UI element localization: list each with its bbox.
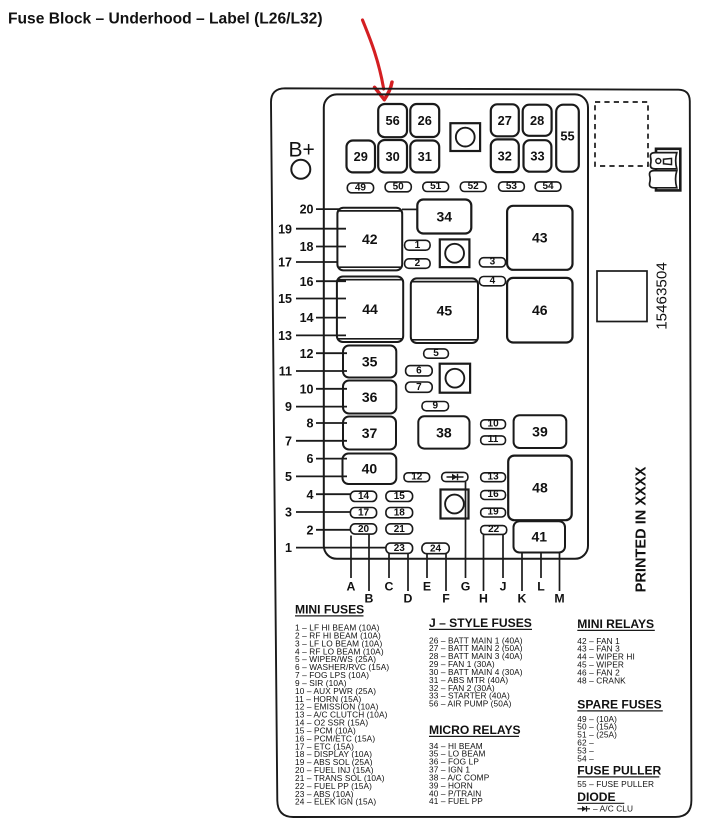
svg-text:1: 1 xyxy=(415,240,421,251)
svg-text:21: 21 xyxy=(394,524,406,535)
svg-text:L: L xyxy=(537,579,545,593)
svg-text:8: 8 xyxy=(307,417,314,431)
svg-text:10: 10 xyxy=(488,418,500,429)
svg-text:4: 4 xyxy=(490,276,496,287)
svg-text:7: 7 xyxy=(416,382,422,393)
svg-text:9: 9 xyxy=(285,400,292,414)
svg-text:SPARE FUSES: SPARE FUSES xyxy=(577,698,661,712)
svg-text:45: 45 xyxy=(437,303,453,319)
svg-text:1: 1 xyxy=(285,541,292,555)
svg-text:4: 4 xyxy=(307,488,314,502)
svg-text:J: J xyxy=(500,579,507,593)
svg-text:12: 12 xyxy=(300,347,314,361)
svg-text:17: 17 xyxy=(278,256,292,270)
svg-text:13: 13 xyxy=(278,329,292,343)
svg-text:42: 42 xyxy=(362,231,378,247)
svg-text:48: 48 xyxy=(532,480,548,496)
svg-text:20: 20 xyxy=(358,524,370,535)
svg-text:A: A xyxy=(347,579,356,593)
svg-text:43: 43 xyxy=(532,230,548,246)
svg-text:3: 3 xyxy=(285,506,292,520)
svg-text:50: 50 xyxy=(393,182,405,193)
svg-text:DIODE: DIODE xyxy=(577,790,615,804)
svg-text:D: D xyxy=(404,592,413,606)
svg-text:G: G xyxy=(461,579,471,593)
svg-text:54: 54 xyxy=(542,181,554,192)
svg-text:6: 6 xyxy=(416,366,422,377)
svg-text:34: 34 xyxy=(437,208,453,224)
svg-text:27: 27 xyxy=(498,113,512,128)
svg-text:36: 36 xyxy=(362,389,378,405)
svg-text:18: 18 xyxy=(394,508,406,519)
svg-text:K: K xyxy=(518,592,527,606)
svg-text:42 – FAN 143 – FAN 344 – WIPER: 42 – FAN 143 – FAN 344 – WIPER HI45 – WI… xyxy=(577,636,635,686)
svg-text:33: 33 xyxy=(530,149,544,164)
svg-text:39: 39 xyxy=(532,423,548,439)
svg-text:12: 12 xyxy=(411,471,423,482)
svg-text:5: 5 xyxy=(285,470,292,484)
svg-text:7: 7 xyxy=(285,434,292,448)
svg-text:38: 38 xyxy=(436,424,452,440)
svg-text:13: 13 xyxy=(488,471,500,482)
svg-text:46: 46 xyxy=(532,302,548,318)
svg-text:32: 32 xyxy=(498,148,512,163)
svg-text:19: 19 xyxy=(488,507,500,518)
svg-text:1 – LF HI BEAM (10A)2 – RF HI: 1 – LF HI BEAM (10A)2 – RF HI BEAM (10A)… xyxy=(295,623,389,807)
svg-text:26 – BATT MAIN 1 (40A)27 – BAT: 26 – BATT MAIN 1 (40A)27 – BATT MAIN 2 (… xyxy=(429,635,523,708)
svg-text:16: 16 xyxy=(300,275,314,289)
svg-text:55: 55 xyxy=(560,129,574,144)
svg-text:15: 15 xyxy=(394,491,406,502)
svg-text:51: 51 xyxy=(430,181,442,192)
svg-text:40: 40 xyxy=(362,461,378,477)
svg-text:52: 52 xyxy=(468,181,480,192)
svg-text:49 – (10A)50 – (15A)51 – (25A): 49 – (10A)50 – (15A)51 – (25A)62 –53 –54… xyxy=(577,714,617,764)
svg-text:22: 22 xyxy=(488,524,500,535)
svg-text:24: 24 xyxy=(430,543,442,554)
svg-text:MINI RELAYS: MINI RELAYS xyxy=(577,617,654,631)
svg-text:M: M xyxy=(554,592,564,606)
svg-text:44: 44 xyxy=(362,301,378,317)
svg-text:23: 23 xyxy=(394,543,406,554)
svg-text:34 – HI BEAM35 – LO BEAM36 – F: 34 – HI BEAM35 – LO BEAM36 – FOG LP37 – … xyxy=(429,741,490,806)
svg-text:H: H xyxy=(479,592,488,606)
svg-text:17: 17 xyxy=(358,508,370,519)
svg-text:10: 10 xyxy=(300,382,314,396)
svg-text:15463504: 15463504 xyxy=(654,262,671,330)
svg-text:11: 11 xyxy=(488,434,499,445)
svg-text:MICRO RELAYS: MICRO RELAYS xyxy=(429,723,521,737)
svg-text:15: 15 xyxy=(278,292,292,306)
svg-text:PRINTED IN XXXX: PRINTED IN XXXX xyxy=(634,466,650,592)
svg-text:14: 14 xyxy=(300,311,314,325)
svg-text:30: 30 xyxy=(385,149,399,164)
svg-text:5: 5 xyxy=(433,348,439,359)
svg-text:28: 28 xyxy=(530,113,544,128)
svg-text:3: 3 xyxy=(490,257,496,268)
svg-text:FUSE PULLER: FUSE PULLER xyxy=(577,764,661,778)
svg-text:2: 2 xyxy=(415,258,421,269)
svg-text:Fuse Block – Underhood – Label: Fuse Block – Underhood – Label (L26/L32) xyxy=(8,11,323,28)
svg-text:F: F xyxy=(442,592,450,606)
svg-text:31: 31 xyxy=(418,149,432,164)
svg-text:16: 16 xyxy=(488,489,500,500)
svg-text:55 – FUSE PULLER: 55 – FUSE PULLER xyxy=(577,779,654,789)
svg-text:14: 14 xyxy=(358,491,370,502)
svg-text:20: 20 xyxy=(300,203,314,217)
svg-text:29: 29 xyxy=(354,149,368,164)
svg-text:26: 26 xyxy=(418,113,432,128)
svg-text:J – STYLE FUSES: J – STYLE FUSES xyxy=(429,616,532,630)
svg-text:9: 9 xyxy=(432,401,438,412)
svg-text:11: 11 xyxy=(279,365,292,379)
svg-text:41: 41 xyxy=(531,529,547,545)
svg-text:2: 2 xyxy=(307,523,314,537)
svg-text:B+: B+ xyxy=(289,139,315,162)
svg-text:6: 6 xyxy=(307,452,314,466)
svg-text:35: 35 xyxy=(362,353,378,369)
svg-text:C: C xyxy=(385,579,394,593)
svg-text:B: B xyxy=(365,592,374,606)
svg-text:37: 37 xyxy=(362,425,378,441)
svg-text:– A/C CLU: – A/C CLU xyxy=(593,804,633,814)
svg-text:56: 56 xyxy=(385,113,399,128)
svg-text:MINI FUSES: MINI FUSES xyxy=(295,603,364,617)
svg-text:53: 53 xyxy=(506,181,518,192)
svg-text:19: 19 xyxy=(278,222,292,236)
svg-text:E: E xyxy=(423,579,431,593)
svg-text:18: 18 xyxy=(300,240,314,254)
svg-text:49: 49 xyxy=(355,183,367,194)
